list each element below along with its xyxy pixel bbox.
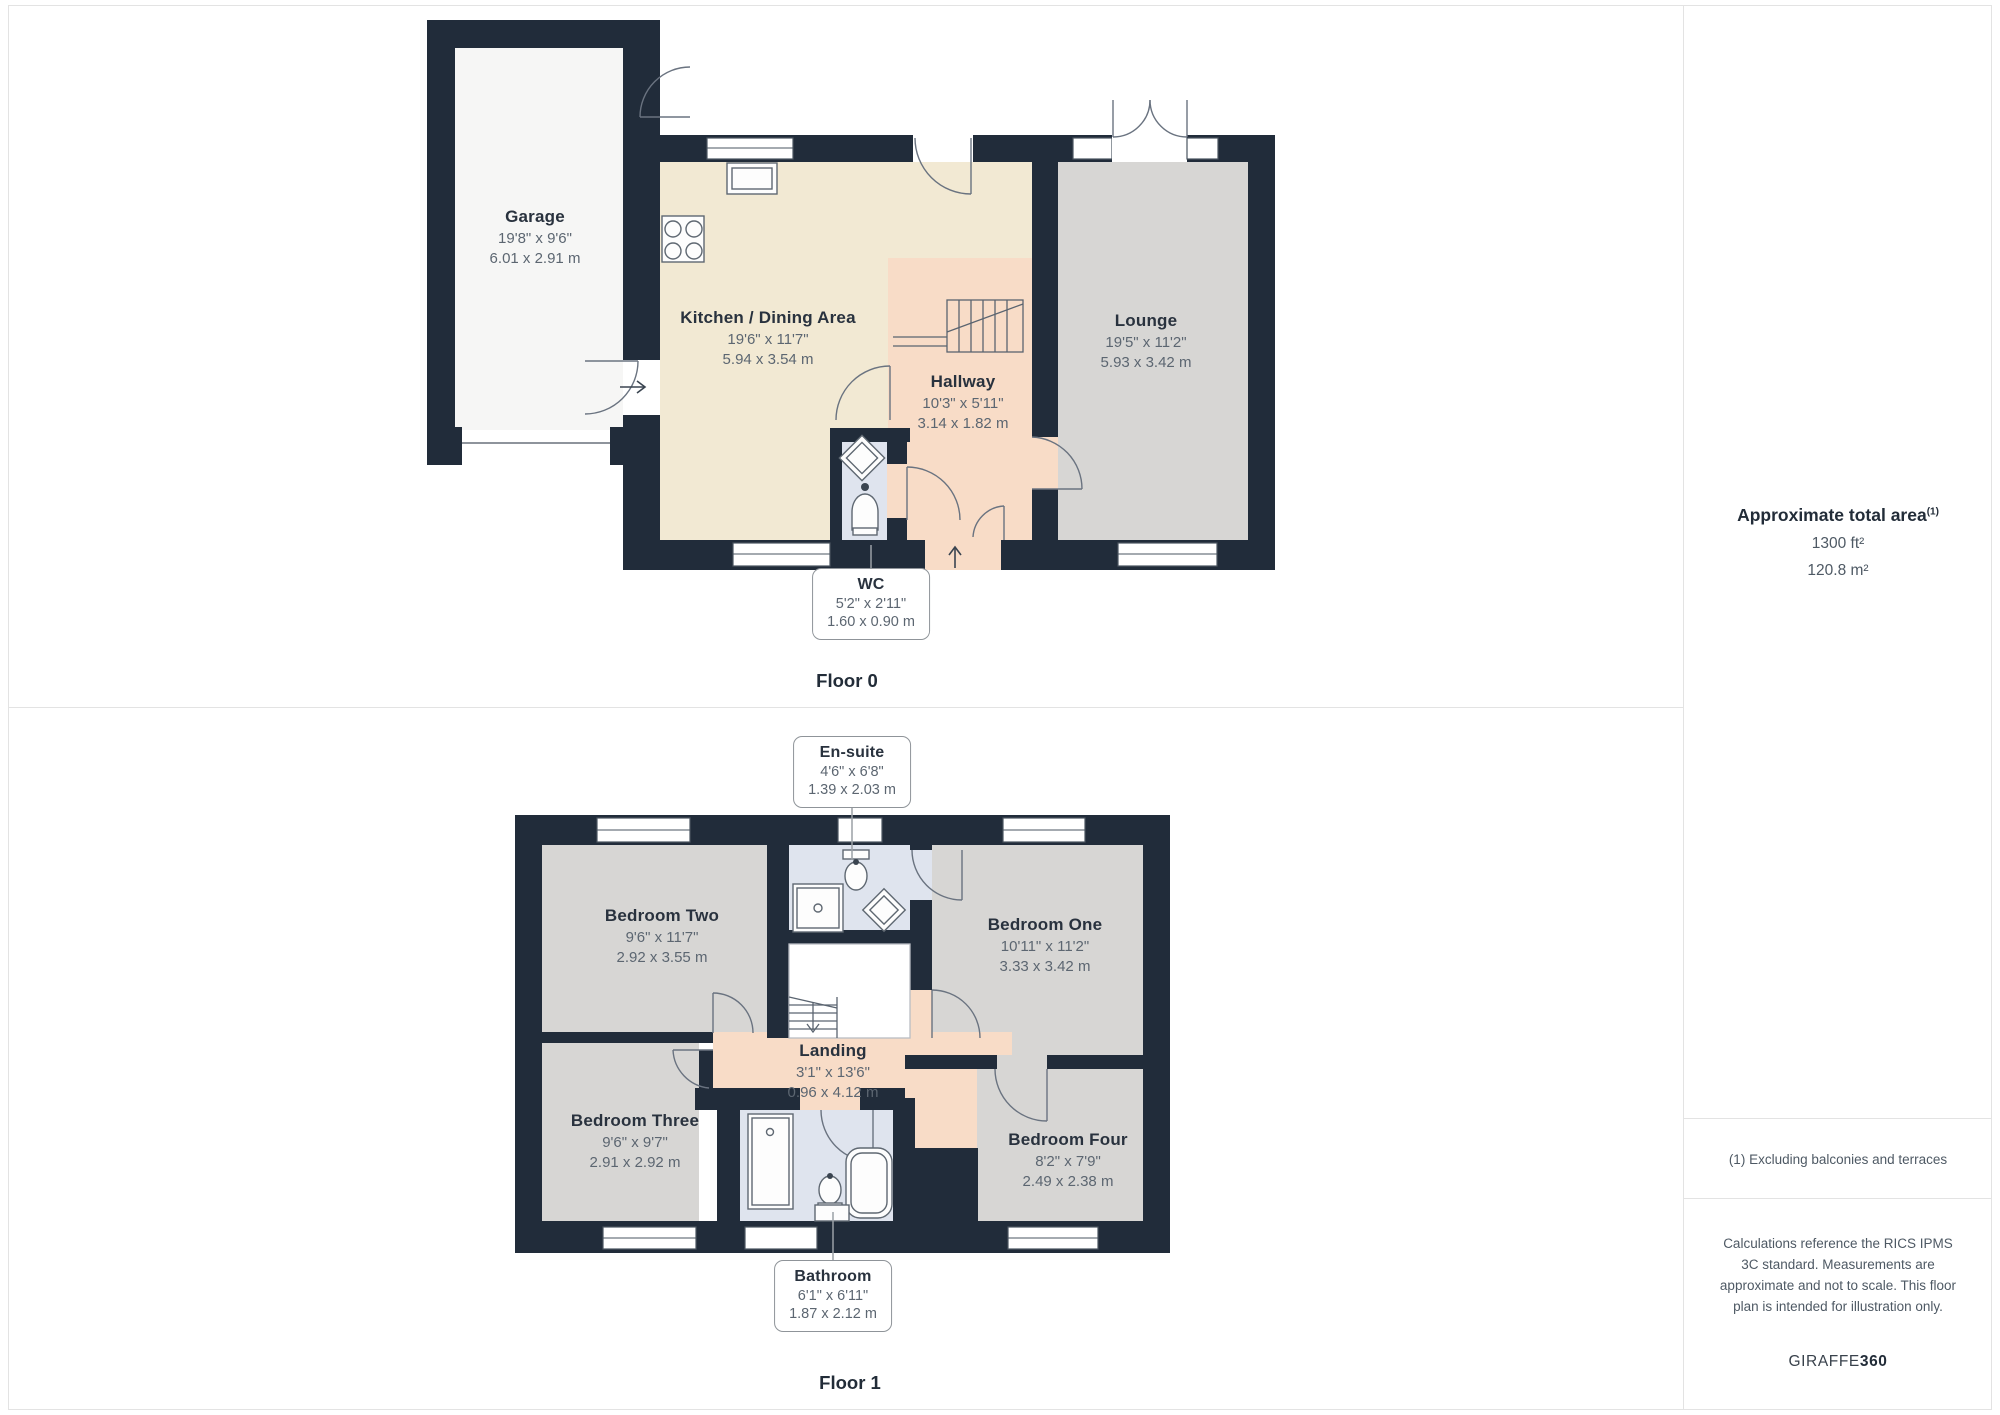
brand-name: GIRAFFE [1788,1353,1859,1370]
disclaimer-text: Calculations reference the RICS IPMS 3C … [1718,1233,1958,1317]
floors-divider [8,707,1683,708]
callout-wc: WC 5'2" x 2'11" 1.60 x 0.90 m [812,568,930,640]
total-area-block: Approximate total area(1) 1300 ft² 120.8… [1684,505,1992,580]
room-name: En-suite [808,744,896,762]
room-name: WC [827,576,915,594]
room-name: Bathroom [789,1268,877,1286]
brand-suffix: 360 [1860,1353,1888,1370]
room-dim-metric: 1.87 x 2.12 m [789,1306,877,1322]
floor1-label: Floor 1 [819,1372,881,1394]
floor0-label: Floor 0 [816,670,878,692]
room-dim-imperial: 4'6" x 6'8" [808,764,896,780]
panel-divider-top [1684,1118,1992,1119]
callout-bathroom: Bathroom 6'1" x 6'11" 1.87 x 2.12 m [774,1260,892,1332]
room-dim-metric: 1.39 x 2.03 m [808,782,896,798]
footnote-text: (1) Excluding balconies and terraces [1684,1152,1992,1167]
room-dim-imperial: 6'1" x 6'11" [789,1288,877,1304]
brand-logo: GIRAFFE360 [1684,1353,1992,1371]
total-area-m: 120.8 m² [1684,562,1992,580]
room-dim-imperial: 5'2" x 2'11" [827,596,915,612]
total-area-title: Approximate total area [1737,505,1927,525]
panel-divider-bottom [1684,1198,1992,1199]
total-area-footnote-marker: (1) [1927,507,1939,518]
room-dim-metric: 1.60 x 0.90 m [827,614,915,630]
callout-ensuite: En-suite 4'6" x 6'8" 1.39 x 2.03 m [793,736,911,808]
total-area-ft: 1300 ft² [1684,535,1992,553]
info-panel: Approximate total area(1) 1300 ft² 120.8… [1684,5,1992,1410]
floorplan-page: Garage 19'8" x 9'6" 6.01 x 2.91 m Kitche… [0,0,2000,1415]
